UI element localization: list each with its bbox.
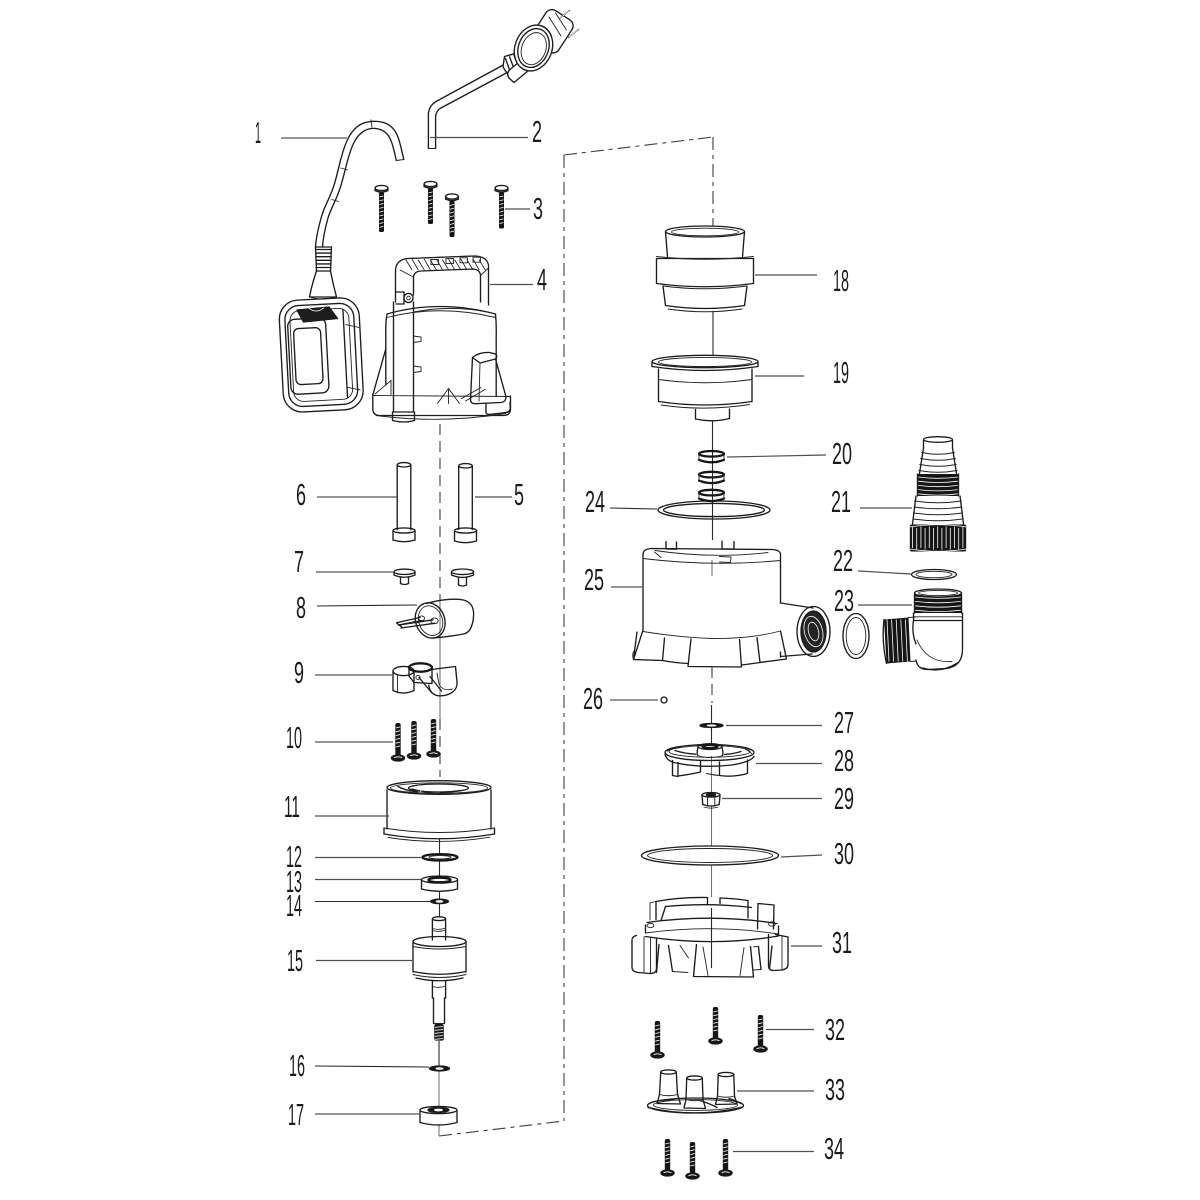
svg-text:22: 22 <box>833 543 853 578</box>
svg-text:15: 15 <box>287 943 303 978</box>
svg-text:8: 8 <box>296 590 306 625</box>
svg-text:26: 26 <box>583 681 603 716</box>
svg-text:3: 3 <box>533 191 543 226</box>
svg-text:14: 14 <box>286 888 302 923</box>
svg-text:28: 28 <box>834 743 854 778</box>
svg-text:23: 23 <box>834 583 854 618</box>
svg-text:17: 17 <box>288 1097 304 1132</box>
svg-text:6: 6 <box>296 477 306 512</box>
svg-text:10: 10 <box>286 720 302 755</box>
svg-text:29: 29 <box>834 781 854 816</box>
svg-text:7: 7 <box>294 544 304 579</box>
svg-text:21: 21 <box>831 484 851 519</box>
svg-text:9: 9 <box>294 655 304 690</box>
svg-text:16: 16 <box>289 1048 305 1083</box>
svg-text:24: 24 <box>585 484 605 519</box>
svg-text:32: 32 <box>825 1012 845 1047</box>
svg-text:27: 27 <box>834 705 854 740</box>
svg-text:19: 19 <box>833 355 849 390</box>
svg-text:4: 4 <box>537 262 547 297</box>
svg-text:1: 1 <box>255 115 261 150</box>
svg-text:31: 31 <box>832 925 852 960</box>
svg-text:2: 2 <box>532 114 542 149</box>
svg-text:33: 33 <box>825 1072 845 1107</box>
svg-text:18: 18 <box>833 263 849 298</box>
svg-text:5: 5 <box>514 477 524 512</box>
svg-text:30: 30 <box>834 836 854 871</box>
svg-text:34: 34 <box>824 1131 844 1166</box>
svg-text:25: 25 <box>584 562 604 597</box>
svg-text:11: 11 <box>284 789 300 824</box>
svg-text:20: 20 <box>832 436 852 471</box>
